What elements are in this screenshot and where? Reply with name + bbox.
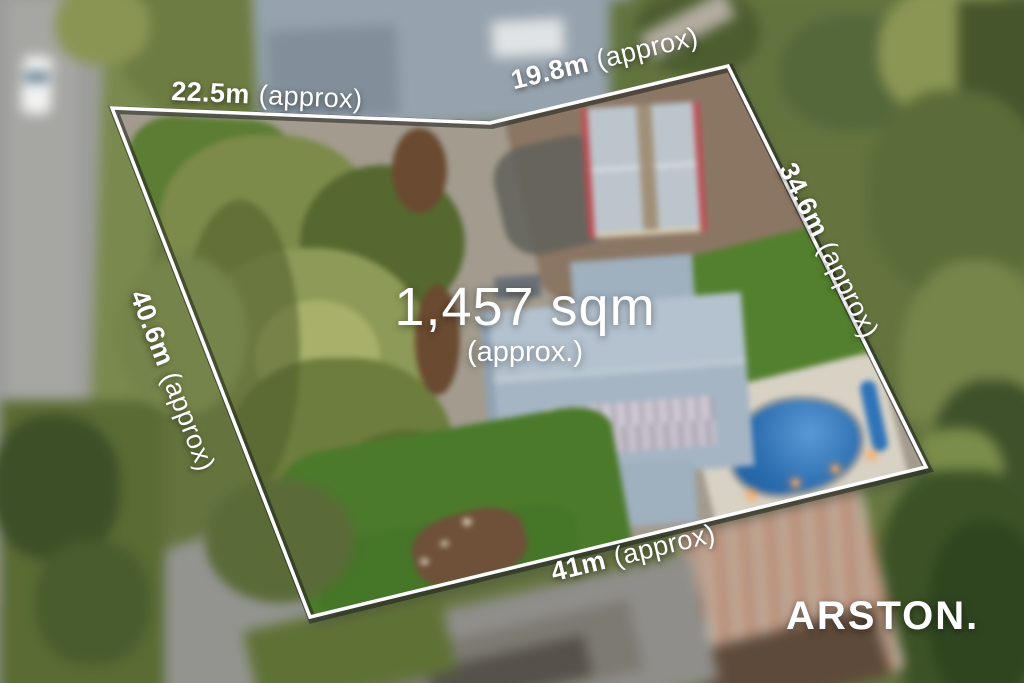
area-value: 1,457 sqm xyxy=(345,280,705,334)
area-approx: (approx.) xyxy=(345,336,705,369)
agency-logo: ARSTON. xyxy=(786,594,979,639)
area-label: 1,457 sqm (approx.) xyxy=(345,280,705,369)
dimension-approx: (approx) xyxy=(258,80,363,114)
dimension-value: 22.5m xyxy=(171,76,251,109)
aerial-property-photo: 22.5m(approx) 19.8m(approx) 34.6m(approx… xyxy=(0,0,1024,683)
